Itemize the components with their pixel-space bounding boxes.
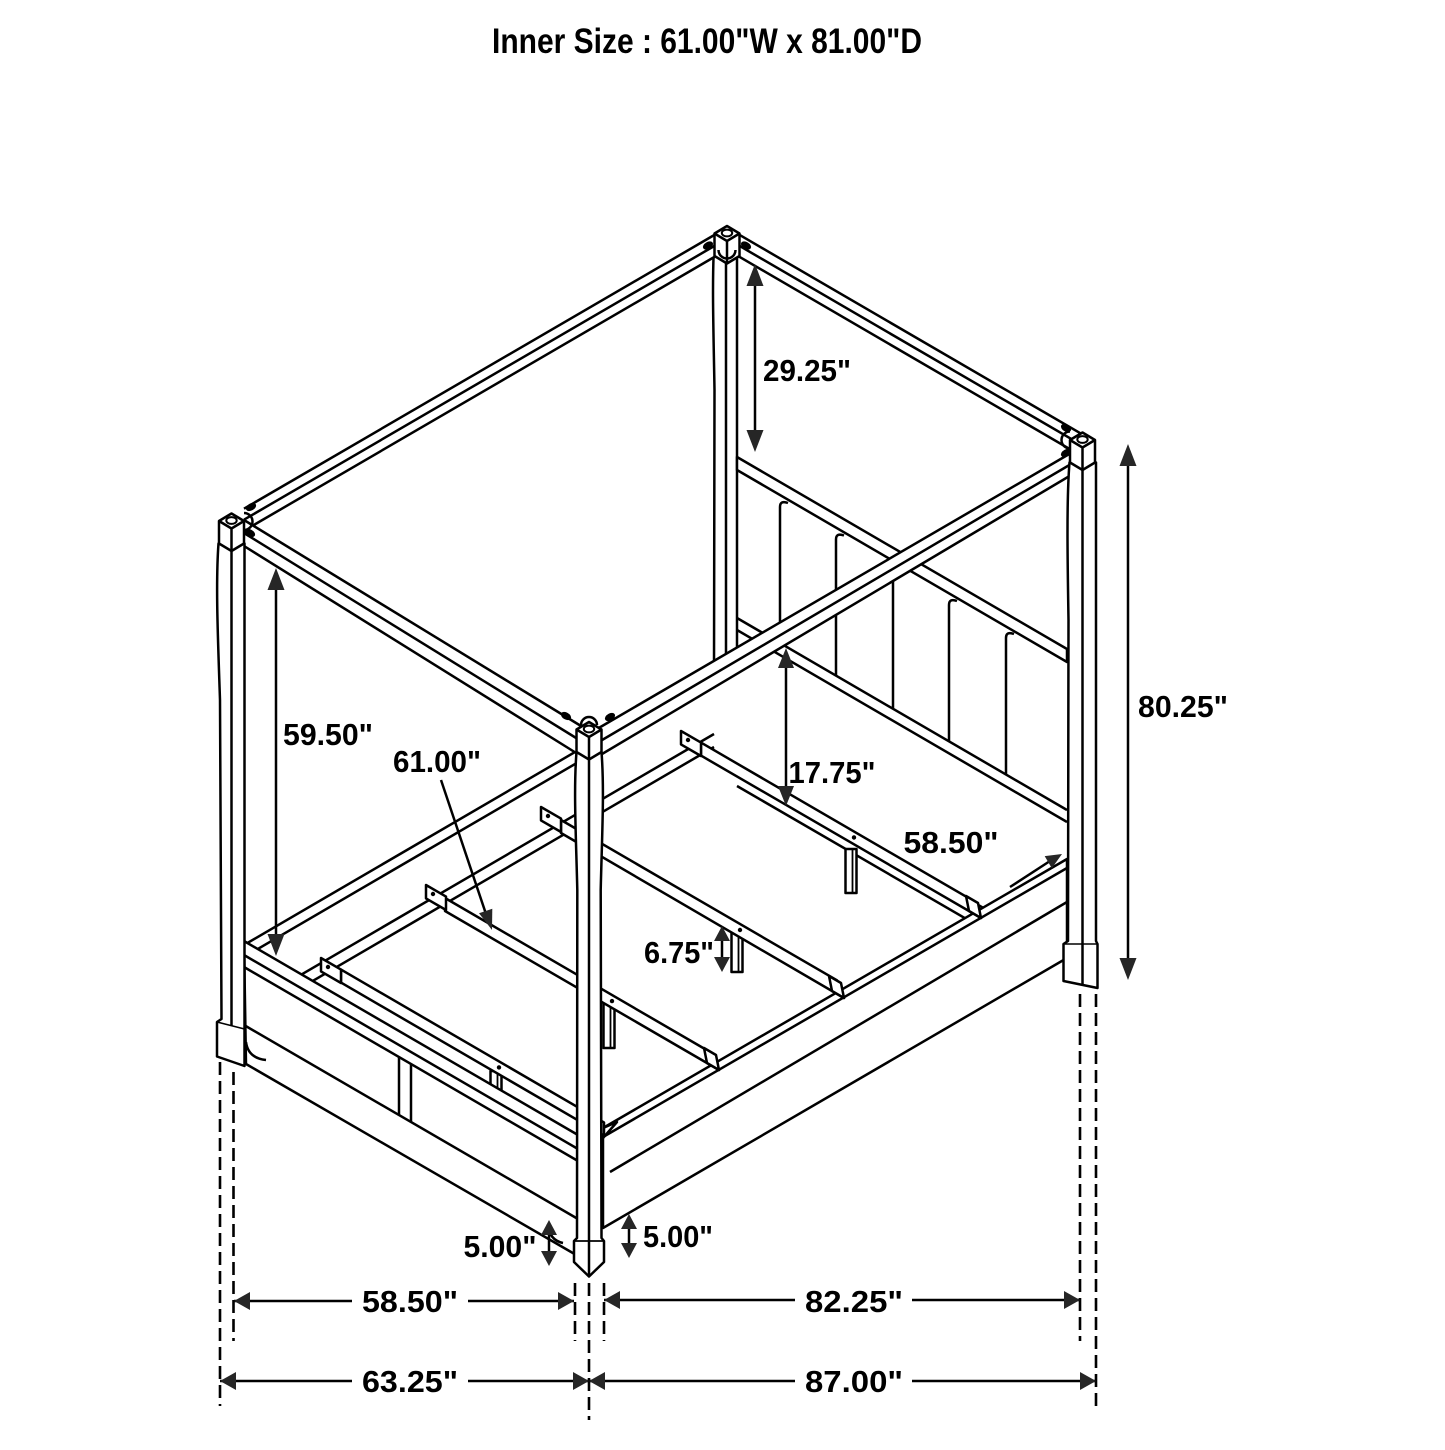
svg-text:29.25": 29.25" bbox=[763, 353, 851, 388]
svg-text:59.50": 59.50" bbox=[283, 717, 373, 752]
svg-text:61.00": 61.00" bbox=[393, 744, 481, 779]
svg-text:Inner Size : 61.00"W x 81.00"D: Inner Size : 61.00"W x 81.00"D bbox=[492, 22, 922, 61]
svg-text:6.75": 6.75" bbox=[644, 935, 714, 970]
svg-text:58.50": 58.50" bbox=[904, 825, 999, 860]
svg-text:17.75": 17.75" bbox=[789, 755, 876, 790]
svg-text:5.00": 5.00" bbox=[464, 1229, 537, 1264]
svg-text:82.25": 82.25" bbox=[805, 1284, 903, 1319]
svg-text:80.25": 80.25" bbox=[1138, 689, 1228, 724]
svg-text:58.50": 58.50" bbox=[362, 1284, 458, 1319]
svg-text:87.00": 87.00" bbox=[805, 1364, 903, 1399]
svg-text:63.25": 63.25" bbox=[362, 1364, 458, 1399]
svg-text:5.00": 5.00" bbox=[643, 1219, 713, 1254]
